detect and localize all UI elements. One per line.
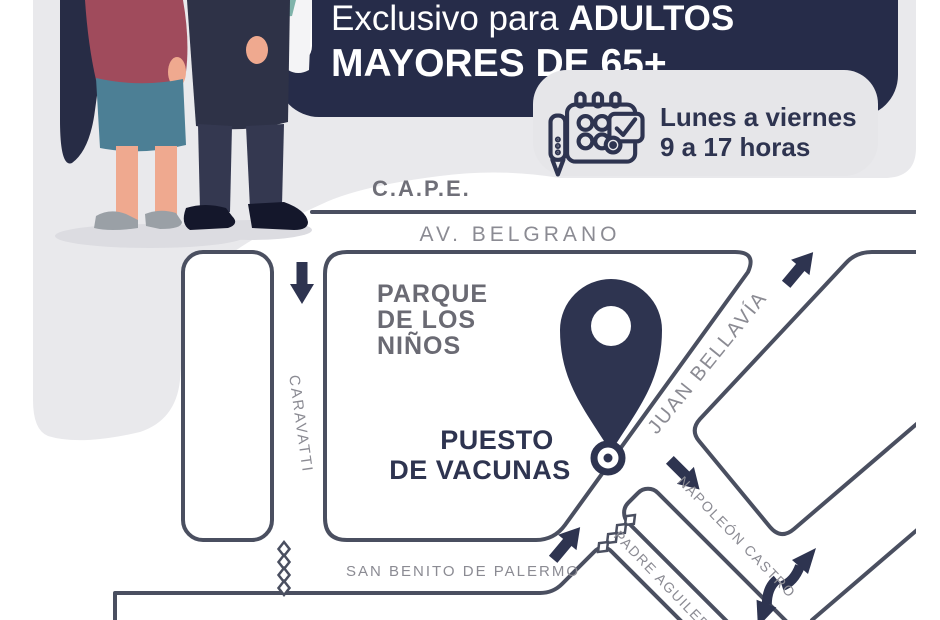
svg-text:NIÑOS: NIÑOS bbox=[377, 330, 461, 360]
caravatti-street-label: CARAVATTI bbox=[285, 374, 316, 474]
arrow-bellavia-up bbox=[777, 244, 822, 292]
banner-line1: Exclusivo para ADULTOS bbox=[331, 0, 734, 38]
svg-text:DE LOS: DE LOS bbox=[377, 306, 476, 334]
block-bottom bbox=[115, 548, 682, 620]
svg-text:DE VACUNAS: DE VACUNAS bbox=[389, 455, 571, 485]
cape-label: C.A.P.E. bbox=[372, 176, 471, 201]
railway-crossing-caravatti bbox=[279, 542, 290, 595]
schedule-days: Lunes a viernes bbox=[660, 102, 857, 132]
block-left bbox=[183, 252, 272, 540]
belgrano-street-label: AV. BELGRANO bbox=[420, 223, 621, 246]
left-page-margin bbox=[0, 0, 33, 620]
street-map bbox=[115, 212, 940, 620]
svg-text:PUESTO: PUESTO bbox=[440, 425, 554, 455]
poster-canvas: C.A.P.E. AV. BELGRANO CARAVATTI JUAN BEL… bbox=[0, 0, 940, 620]
arrow-caravatti-down bbox=[290, 262, 314, 304]
sanbenito-street-label: SAN BENITO DE PALERMO bbox=[346, 563, 580, 580]
right-page-margin bbox=[916, 0, 940, 620]
schedule-hours: 9 a 17 horas bbox=[660, 132, 810, 162]
vaccination-map-poster: C.A.P.E. AV. BELGRANO CARAVATTI JUAN BEL… bbox=[0, 0, 940, 620]
schedule-card: Lunes a viernes 9 a 17 horas bbox=[533, 70, 878, 176]
post-marker-dot bbox=[594, 444, 622, 472]
svg-text:PARQUE: PARQUE bbox=[377, 280, 488, 308]
